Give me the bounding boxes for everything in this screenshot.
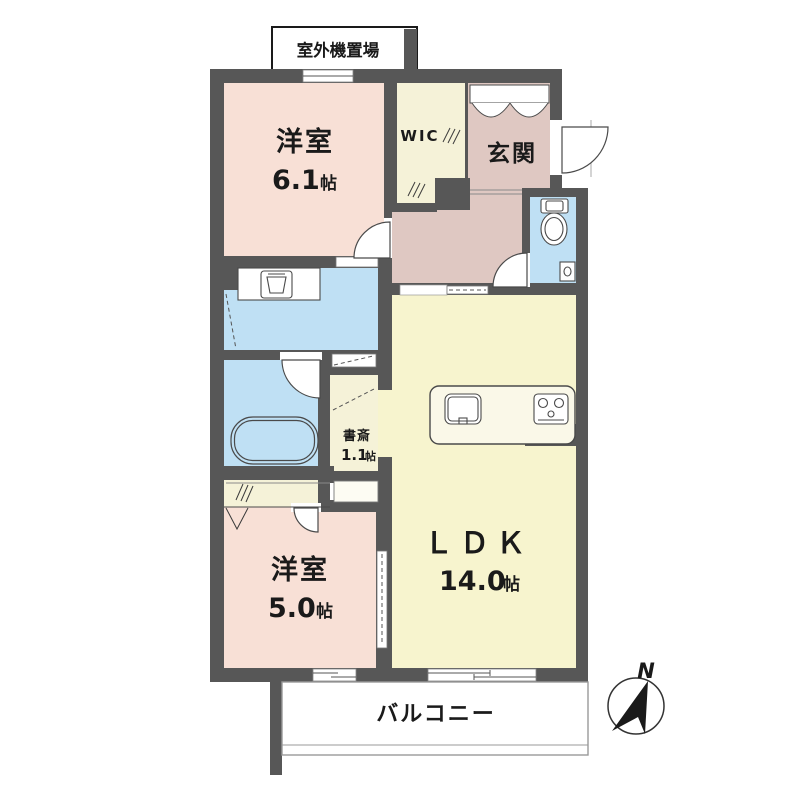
wall-toilet-top (522, 188, 588, 197)
washbasin-counter (238, 268, 320, 300)
floor-plan: N 室外機置場 洋室 6.1 帖 WIC 玄関 ＬＤＫ 14.0 帖 書斎 1.… (0, 0, 800, 800)
study-ldk-opening (378, 390, 392, 457)
wall-left (210, 69, 224, 682)
bedroom-upper-area: 6.1 (272, 165, 320, 196)
wall-entrance-corner (435, 178, 470, 210)
ldk-unit: 帖 (503, 574, 520, 595)
entrance-step-floor (470, 190, 522, 212)
bedroom-upper-unit: 帖 (320, 173, 337, 194)
toilet-washlet-box (560, 262, 575, 281)
wall-below-wic (392, 203, 437, 212)
closet-floor (224, 480, 330, 507)
bedroom-lower-name: 洋室 (271, 554, 329, 586)
wall-wic-divider (384, 83, 397, 211)
floor-plan-page: N 室外機置場 洋室 6.1 帖 WIC 玄関 ＬＤＫ 14.0 帖 書斎 1.… (0, 0, 800, 800)
study-sliding-door (332, 354, 376, 367)
kitchen (430, 386, 575, 444)
bedroom-upper-name: 洋室 (276, 126, 334, 158)
sink-outer (445, 394, 481, 424)
balcony-label: バルコニー (376, 702, 496, 727)
window-ldk (428, 669, 536, 681)
bedroom-lower-unit: 帖 (316, 601, 333, 622)
wic-label: WIC (400, 127, 439, 145)
study-unit: 帖 (365, 449, 376, 463)
shoe-cabinet-box (470, 85, 549, 103)
ldk-area: 14.0 (439, 566, 506, 597)
washbasin-icon (238, 268, 320, 300)
bedroom-lower-area: 5.0 (268, 593, 316, 624)
ldk-name: ＬＤＫ (424, 526, 532, 560)
window-bedroom-lower (313, 669, 356, 681)
study-area: 1.1 (341, 446, 368, 464)
study-name: 書斎 (343, 428, 371, 444)
ldk-floor (392, 295, 576, 670)
compass-north-label: N (637, 659, 655, 683)
hall-ldk-sliding-door (447, 286, 488, 294)
bedroom-lower-floor (224, 507, 376, 670)
wall-balcony-stub (270, 682, 282, 775)
kitchen-sink-icon (445, 394, 481, 424)
storage-box (334, 481, 378, 502)
entrance-label: 玄関 (487, 140, 537, 167)
wall-wic-entrance-line (465, 83, 468, 183)
outdoor-unit-label: 室外機置場 (297, 40, 380, 60)
wall-linen-stub (224, 264, 238, 290)
stove-icon (534, 394, 568, 424)
outdoor-unit-wall-block (404, 29, 417, 70)
entrance-door-opening (550, 120, 562, 175)
wall-top (210, 69, 562, 83)
wall-closet-top (224, 466, 334, 480)
bath-door-opening (280, 352, 322, 360)
hall-ldk-passage (400, 285, 447, 295)
